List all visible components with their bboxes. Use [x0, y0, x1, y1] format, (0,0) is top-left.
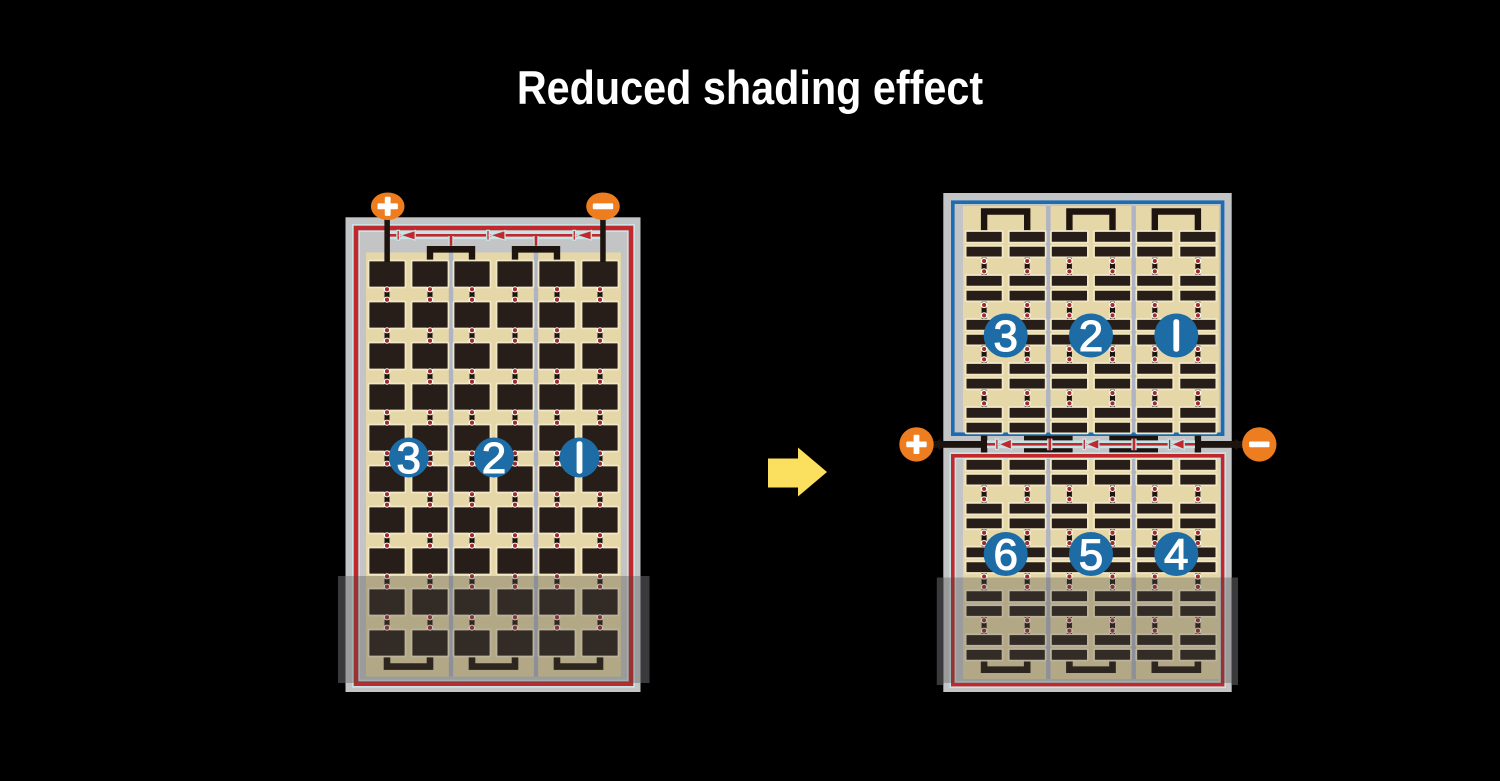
svg-text:2: 2	[482, 434, 506, 483]
svg-text:3: 3	[397, 434, 421, 483]
svg-text:4: 4	[1164, 531, 1188, 580]
svg-text:3: 3	[993, 312, 1017, 361]
svg-text:2: 2	[1079, 312, 1103, 361]
svg-text:6: 6	[993, 531, 1017, 580]
svg-text:5: 5	[1079, 531, 1103, 580]
svg-text:Reduced shading effect: Reduced shading effect	[517, 63, 984, 115]
